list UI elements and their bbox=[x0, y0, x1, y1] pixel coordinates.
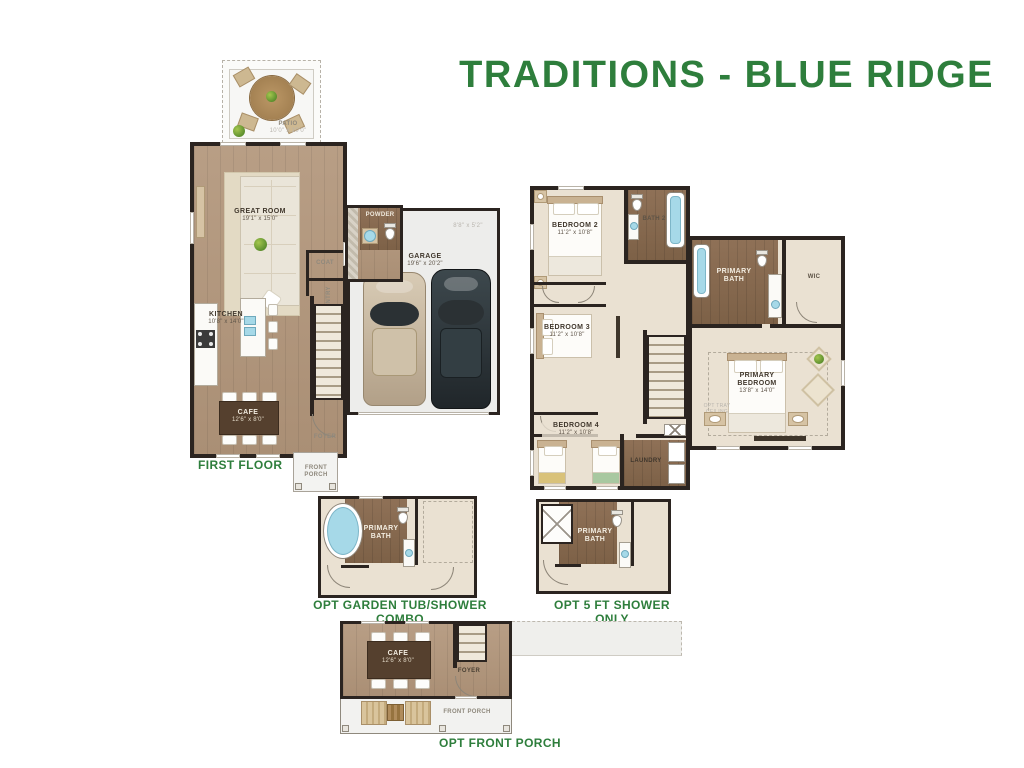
tub-water bbox=[697, 248, 706, 294]
opt-bath-name: PRIMARY BATH bbox=[357, 525, 405, 541]
patio-area: PATIO 10'0" x 10'0" bbox=[222, 60, 321, 148]
toilet-bowl bbox=[385, 228, 395, 240]
cafe-label: CAFE 12'6" x 8'0" bbox=[220, 409, 276, 424]
interior-wall bbox=[624, 260, 686, 264]
opt-front-porch-text: OPT FRONT PORCH bbox=[439, 736, 561, 750]
powder-name: POWDER bbox=[362, 212, 398, 219]
window bbox=[280, 142, 306, 146]
plant-icon bbox=[266, 91, 277, 102]
opt-cafe-name: CAFE bbox=[368, 650, 428, 658]
interior-wall bbox=[692, 324, 762, 328]
car-top-view-light bbox=[363, 272, 426, 406]
cafe-chair bbox=[242, 435, 257, 445]
bedroom3-dim: 11'2" x 10'8" bbox=[540, 332, 594, 339]
opt-foyer-label: FOYER bbox=[449, 668, 489, 675]
primary-bath-name: PRIMARY BATH bbox=[710, 268, 758, 284]
cafe-dim: 12'6" x 8'0" bbox=[220, 417, 276, 424]
garage-outline-remnant bbox=[512, 621, 682, 656]
door-swing bbox=[455, 676, 476, 697]
shower-5ft bbox=[541, 504, 573, 544]
lamp bbox=[537, 193, 544, 200]
garage-door-opening bbox=[358, 412, 489, 415]
porch-chair bbox=[361, 701, 387, 725]
cafe-chair bbox=[222, 435, 237, 445]
bed-pillow bbox=[544, 446, 563, 456]
bed-fold bbox=[593, 472, 619, 483]
coat-name: COAT bbox=[308, 260, 342, 267]
bedroom4-dim: 11'2" x 10'8" bbox=[542, 430, 610, 437]
window bbox=[558, 186, 584, 190]
interior-wall bbox=[631, 502, 634, 566]
primary-sink bbox=[771, 300, 780, 309]
interior-wall bbox=[620, 434, 624, 486]
window bbox=[361, 621, 385, 624]
opt-sink bbox=[621, 550, 629, 558]
primary-bedroom-name: PRIMARY BEDROOM bbox=[728, 372, 786, 388]
bed-pillow bbox=[542, 338, 553, 355]
opt-bath-label: PRIMARY BATH bbox=[571, 528, 619, 544]
bed-fold bbox=[539, 472, 565, 483]
powder-hall: POWDER bbox=[345, 205, 403, 282]
opt-bath-label: PRIMARY BATH bbox=[357, 525, 405, 541]
porch-post bbox=[342, 725, 349, 732]
bedroom2-label: BEDROOM 2 11'2" x 10'8" bbox=[548, 222, 602, 237]
window bbox=[530, 450, 534, 476]
interior-wall bbox=[782, 240, 786, 324]
twin-bed bbox=[538, 442, 566, 484]
bed-pillow bbox=[577, 203, 599, 215]
foyer-label: FOYER bbox=[308, 434, 342, 441]
door-swing bbox=[327, 565, 350, 588]
bed-fold bbox=[549, 256, 601, 275]
cafe-name: CAFE bbox=[220, 409, 276, 417]
garage-note: 8'8" x 5'2" bbox=[446, 223, 490, 230]
lamp bbox=[792, 415, 804, 423]
page-title: TRADITIONS - BLUE RIDGE bbox=[430, 54, 994, 97]
staircase-second bbox=[647, 335, 686, 419]
bedroom4-label: BEDROOM 4 11'2" x 10'8" bbox=[542, 422, 610, 437]
window bbox=[544, 486, 566, 490]
interior-wall bbox=[306, 250, 343, 253]
closet-outline bbox=[423, 501, 473, 563]
toilet-bowl bbox=[612, 515, 622, 527]
nightstand bbox=[704, 412, 726, 426]
patio-name: PATIO bbox=[259, 121, 317, 128]
interior-wall bbox=[306, 278, 343, 281]
staircase bbox=[314, 304, 343, 400]
opt-sink bbox=[405, 549, 413, 557]
interior-wall bbox=[306, 250, 309, 296]
bed-pillow bbox=[598, 446, 617, 456]
cafe-chair bbox=[393, 679, 408, 689]
car-hood bbox=[444, 277, 479, 291]
window bbox=[220, 142, 246, 146]
porch-chair bbox=[405, 701, 431, 725]
kitchen-name: KITCHEN bbox=[200, 311, 252, 319]
bedroom4-name: BEDROOM 4 bbox=[542, 422, 610, 430]
opt-bath-name: PRIMARY BATH bbox=[571, 528, 619, 544]
porch-post bbox=[503, 725, 510, 732]
car-roof bbox=[372, 328, 417, 376]
nightstand bbox=[788, 412, 808, 426]
window bbox=[530, 224, 534, 250]
washer bbox=[668, 442, 685, 462]
sofa-cushions bbox=[244, 180, 296, 302]
porch-table bbox=[387, 704, 404, 721]
opt-foyer-name: FOYER bbox=[449, 668, 489, 675]
door-swing bbox=[431, 567, 454, 590]
island-stool bbox=[268, 321, 278, 333]
window bbox=[190, 212, 194, 244]
staircase bbox=[457, 624, 487, 662]
island-stool bbox=[268, 338, 278, 350]
car-roof bbox=[440, 328, 483, 378]
floorplan-sheet: TRADITIONS - BLUE RIDGE PATIO 10'0" x 10… bbox=[0, 0, 1024, 768]
car-windshield bbox=[438, 300, 484, 325]
powder-sink bbox=[364, 230, 376, 242]
bath2-name: BATH 2 bbox=[636, 216, 672, 223]
garage-note-text: 8'8" x 5'2" bbox=[446, 223, 490, 230]
kitchen-dim: 10'8" x 14'0" bbox=[200, 319, 252, 326]
primary-tub bbox=[693, 244, 710, 298]
door-swing bbox=[578, 286, 595, 303]
primary-suite: PRIMARY BATH WIC PRIMARY BEDROOM 13'8" x… bbox=[688, 236, 845, 450]
console-table bbox=[196, 186, 205, 238]
bedroom3-name: BEDROOM 3 bbox=[540, 324, 594, 332]
plant-icon bbox=[814, 354, 824, 364]
porch-post bbox=[329, 483, 336, 490]
closet-wall bbox=[534, 412, 598, 415]
toilet-bowl bbox=[398, 512, 408, 524]
great-room-label: GREAT ROOM 19'1" x 15'0" bbox=[230, 208, 290, 223]
window bbox=[841, 360, 845, 386]
toilet-fixture bbox=[631, 194, 643, 211]
window bbox=[405, 621, 429, 624]
patio-label: PATIO 10'0" x 10'0" bbox=[259, 121, 317, 135]
first-floor-label-text: FIRST FLOOR bbox=[198, 458, 282, 472]
toilet-fixture bbox=[397, 507, 409, 524]
nightstand bbox=[534, 190, 547, 203]
cafe-chair bbox=[262, 435, 277, 445]
plant-icon bbox=[254, 238, 267, 251]
toilet-fixture bbox=[611, 510, 623, 527]
wic-label: WIC bbox=[796, 274, 832, 281]
bedroom2-name: BEDROOM 2 bbox=[548, 222, 602, 230]
window bbox=[530, 328, 534, 354]
primary-bath-label: PRIMARY BATH bbox=[710, 268, 758, 284]
foyer-name: FOYER bbox=[308, 434, 342, 441]
door-swing bbox=[543, 560, 568, 585]
bed-bedroom2 bbox=[548, 198, 602, 276]
dryer bbox=[668, 464, 685, 484]
lamp bbox=[709, 415, 722, 423]
great-room-dim: 19'1" x 15'0" bbox=[230, 216, 290, 223]
cafe-chair bbox=[371, 679, 386, 689]
opt-porch-label: FRONT PORCH bbox=[441, 709, 493, 716]
cabinet bbox=[664, 424, 686, 436]
media-console bbox=[754, 436, 806, 441]
primary-bedroom-label: PRIMARY BEDROOM 13'8" x 14'0" bbox=[728, 372, 786, 395]
opt-cafe-label: CAFE 12'6" x 8'0" bbox=[368, 650, 428, 665]
window bbox=[596, 486, 618, 490]
toilet-bowl bbox=[757, 255, 767, 267]
opt-front-porch-label: OPT FRONT PORCH bbox=[420, 736, 580, 750]
front-porch-first-floor: FRONT PORCH bbox=[293, 452, 338, 492]
front-porch-name: FRONT PORCH bbox=[296, 465, 336, 479]
laundry-label: LAUNDRY bbox=[626, 458, 666, 465]
bedroom2-dim: 11'2" x 10'8" bbox=[548, 230, 602, 237]
bed-fold bbox=[729, 413, 785, 432]
porch-post bbox=[439, 725, 446, 732]
opt-garden-tub-plan: PRIMARY BATH bbox=[318, 496, 477, 598]
twin-bed bbox=[592, 442, 620, 484]
window bbox=[788, 446, 812, 450]
dresser bbox=[616, 316, 620, 358]
bed-pillow bbox=[553, 203, 575, 215]
closet-wall bbox=[534, 282, 606, 285]
coat-label: COAT bbox=[308, 260, 342, 267]
bath2-label: BATH 2 bbox=[636, 216, 672, 223]
great-room-name: GREAT ROOM bbox=[230, 208, 290, 216]
window bbox=[359, 496, 383, 499]
interior-wall bbox=[770, 324, 841, 328]
opt-porch-name: FRONT PORCH bbox=[441, 709, 493, 716]
opt-cafe-dim: 12'6" x 8'0" bbox=[368, 658, 428, 665]
primary-vanity bbox=[768, 274, 782, 318]
opt-front-porch-plan: CAFE 12'6" x 8'0" FOYER bbox=[340, 621, 512, 699]
toilet-bowl bbox=[632, 199, 642, 211]
second-floor-main: BEDROOM 2 11'2" x 10'8" BATH 2 BEDROOM 3… bbox=[530, 186, 690, 490]
cafe-chair bbox=[415, 679, 430, 689]
kitchen-sink bbox=[244, 327, 256, 336]
island-stool bbox=[268, 304, 278, 316]
toilet-fixture bbox=[756, 250, 768, 267]
porch-post bbox=[295, 483, 302, 490]
opt-porch-deck: FRONT PORCH bbox=[340, 699, 512, 734]
door-swing bbox=[542, 286, 559, 303]
first-floor-main: GREAT ROOM 19'1" x 15'0" KITCHEN 10'8" x… bbox=[190, 142, 347, 458]
powder-label: POWDER bbox=[362, 212, 398, 219]
laundry-name: LAUNDRY bbox=[626, 458, 666, 465]
patio-dim: 10'0" x 10'0" bbox=[259, 128, 317, 135]
toilet-fixture bbox=[384, 223, 396, 240]
plant-icon bbox=[233, 125, 245, 137]
tub-water bbox=[327, 507, 359, 555]
stove bbox=[196, 330, 215, 348]
interior-wall bbox=[415, 499, 418, 565]
primary-bedroom-dim: 13'8" x 14'0" bbox=[728, 388, 786, 395]
closet-wall bbox=[534, 304, 606, 307]
bath2-sink bbox=[630, 222, 638, 230]
bedroom3-label: BEDROOM 3 11'2" x 10'8" bbox=[540, 324, 594, 339]
front-porch-label: FRONT PORCH bbox=[296, 465, 336, 479]
great-room-sofa bbox=[240, 176, 300, 306]
opt-shower-plan: PRIMARY BATH bbox=[536, 499, 671, 594]
closet-hatch bbox=[348, 208, 358, 279]
car-windshield bbox=[370, 302, 419, 326]
window bbox=[716, 446, 740, 450]
car-top-view-dark bbox=[431, 269, 491, 409]
wic-name: WIC bbox=[796, 274, 832, 281]
kitchen-label: KITCHEN 10'8" x 14'0" bbox=[200, 311, 252, 326]
door-swing bbox=[796, 302, 817, 323]
